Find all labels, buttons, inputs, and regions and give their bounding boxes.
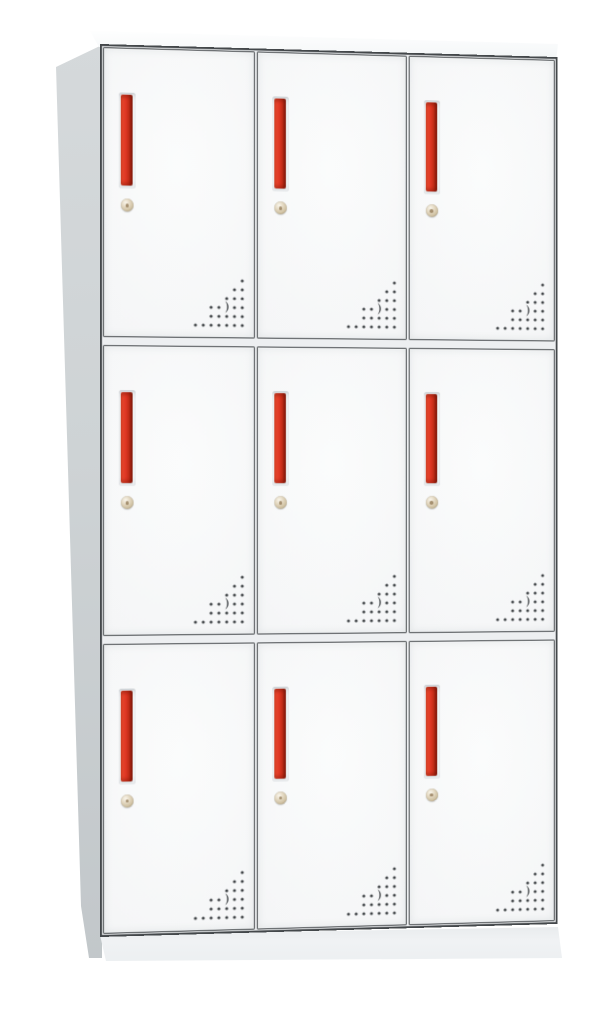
vent-dot <box>526 319 529 322</box>
vent-dot <box>210 611 213 614</box>
vent-dot <box>370 308 373 311</box>
vent-dot <box>210 907 213 910</box>
vent-crescent <box>377 889 380 901</box>
vent-dot <box>393 299 396 302</box>
vent-dot <box>393 326 396 329</box>
vent-dot <box>393 282 396 285</box>
vent-dot <box>347 913 350 916</box>
vent-dot <box>385 290 388 293</box>
vent-dot <box>377 885 380 888</box>
vent-dot <box>385 592 388 595</box>
vent-holes-icon <box>494 860 547 914</box>
vent-dot <box>541 327 544 330</box>
vent-dot <box>241 306 244 309</box>
vent-dot <box>504 618 507 621</box>
vent-dot <box>241 297 244 300</box>
vent-dot <box>218 620 221 623</box>
vent-dot <box>385 876 388 879</box>
vent-dot <box>225 297 228 300</box>
door-handle <box>425 394 436 483</box>
vent-dot <box>241 575 244 578</box>
vent-holes-icon <box>344 864 398 918</box>
vent-dot <box>534 600 537 603</box>
vent-dot <box>385 903 388 906</box>
vent-dot <box>541 292 544 295</box>
door-keyhole-lock <box>275 201 288 214</box>
vent-dot <box>534 617 537 620</box>
door-handle-recess <box>424 100 440 194</box>
locker-door <box>103 345 255 635</box>
vent-dot <box>541 890 544 893</box>
vent-dot <box>393 317 396 320</box>
vent-dot <box>233 916 236 919</box>
vent-dot <box>241 915 244 918</box>
locker-door <box>257 641 406 930</box>
vent-dot <box>225 889 228 892</box>
vent-dot <box>541 898 544 901</box>
door-handle <box>425 102 436 191</box>
vent-dot <box>241 898 244 901</box>
vent-dot <box>541 907 544 910</box>
door-handle-recess <box>273 686 289 781</box>
vent-holes-icon <box>192 572 247 626</box>
vent-dot <box>496 327 499 330</box>
vent-dot <box>496 618 499 621</box>
vent-dot <box>210 898 213 901</box>
vent-dot <box>210 315 213 318</box>
cabinet-side-panel <box>52 40 104 965</box>
vent-dot <box>202 917 205 920</box>
vent-crescent <box>377 596 380 608</box>
vent-dot <box>385 894 388 897</box>
vent-dot <box>541 872 544 875</box>
vent-dot <box>534 907 537 910</box>
vent-dot <box>541 864 544 867</box>
vent-dot <box>225 593 228 596</box>
locker-door <box>408 348 554 633</box>
vent-dot <box>233 297 236 300</box>
vent-dot <box>210 602 213 605</box>
vent-dot <box>210 916 213 919</box>
vent-dot <box>393 610 396 613</box>
vent-dot <box>233 602 236 605</box>
vent-crescent <box>226 597 229 609</box>
door-handle-recess <box>273 391 289 486</box>
vent-dot <box>377 610 380 613</box>
vent-dot <box>362 912 365 915</box>
vent-dot <box>511 908 514 911</box>
vent-dot <box>519 327 522 330</box>
vent-dot <box>519 899 522 902</box>
vent-dot <box>218 611 221 614</box>
vent-dot <box>354 912 357 915</box>
vent-dot <box>526 908 529 911</box>
vent-dot <box>233 584 236 587</box>
door-handle-recess <box>119 688 136 784</box>
cabinet-front <box>100 44 558 937</box>
vent-dot <box>393 911 396 914</box>
vent-dot <box>233 889 236 892</box>
vent-dot <box>241 880 244 883</box>
vent-dot <box>541 310 544 313</box>
vent-dot <box>534 327 537 330</box>
vent-dot <box>534 591 537 594</box>
vent-dot <box>534 301 537 304</box>
vent-dot <box>519 890 522 893</box>
vent-dot <box>393 291 396 294</box>
vent-dot <box>393 894 396 897</box>
vent-dot <box>194 324 197 327</box>
vent-dot <box>534 890 537 893</box>
vent-dot <box>362 326 365 329</box>
vent-dot <box>377 619 380 622</box>
vent-dot <box>393 574 396 577</box>
vent-dot <box>370 610 373 613</box>
vent-dot <box>233 611 236 614</box>
locker-door <box>408 56 554 342</box>
vent-dot <box>370 619 373 622</box>
vent-dot <box>393 592 396 595</box>
vent-holes-icon <box>344 278 398 332</box>
vent-dot <box>354 619 357 622</box>
vent-dot <box>377 903 380 906</box>
vent-dot <box>210 324 213 327</box>
door-keyhole-lock <box>121 794 134 807</box>
door-handle <box>275 98 287 188</box>
door-keyhole-lock <box>425 204 437 217</box>
locker-product-photo <box>0 0 605 1009</box>
vent-dot <box>534 319 537 322</box>
vent-dot <box>385 308 388 311</box>
vent-dot <box>385 912 388 915</box>
vent-dot <box>225 315 228 318</box>
vent-dot <box>541 881 544 884</box>
vent-dot <box>541 284 544 287</box>
vent-dot <box>241 907 244 910</box>
vent-dot <box>393 601 396 604</box>
door-handle <box>275 393 287 483</box>
vent-dot <box>541 609 544 612</box>
vent-dot <box>541 574 544 577</box>
vent-dot <box>218 907 221 910</box>
vent-dot <box>534 899 537 902</box>
vent-dot <box>519 908 522 911</box>
vent-dot <box>233 324 236 327</box>
vent-dot <box>233 593 236 596</box>
vent-dot <box>526 609 529 612</box>
vent-dot <box>241 871 244 874</box>
door-handle-recess <box>424 684 440 778</box>
vent-dot <box>504 908 507 911</box>
vent-dot <box>241 602 244 605</box>
vent-dot <box>362 894 365 897</box>
vent-dot <box>370 903 373 906</box>
vent-dot <box>385 299 388 302</box>
door-handle <box>275 688 287 778</box>
door-keyhole-lock <box>425 496 437 509</box>
vent-dot <box>385 317 388 320</box>
door-keyhole-lock <box>275 791 288 804</box>
vent-dot <box>393 885 396 888</box>
vent-dot <box>233 315 236 318</box>
door-handle-recess <box>119 390 136 486</box>
vent-dot <box>534 310 537 313</box>
vent-dot <box>519 600 522 603</box>
vent-dot <box>385 610 388 613</box>
door-handle <box>121 95 133 186</box>
door-handle <box>121 392 133 483</box>
vent-dot <box>377 912 380 915</box>
door-handle-recess <box>119 92 136 188</box>
vent-dot <box>526 327 529 330</box>
vent-dot <box>534 609 537 612</box>
vent-dot <box>541 600 544 603</box>
door-handle-recess <box>424 392 440 486</box>
vent-dot <box>393 876 396 879</box>
vent-dot <box>233 306 236 309</box>
vent-dot <box>534 881 537 884</box>
vent-dot <box>519 318 522 321</box>
locker-door <box>103 642 255 934</box>
vent-crescent <box>377 303 380 315</box>
vent-dot <box>241 584 244 587</box>
vent-crescent <box>226 301 229 313</box>
vent-dot <box>541 319 544 322</box>
locker-door <box>103 47 255 339</box>
vent-dot <box>511 327 514 330</box>
vent-dot <box>233 288 236 291</box>
vent-holes-icon <box>494 280 547 333</box>
vent-dot <box>241 620 244 623</box>
vent-dot <box>511 600 514 603</box>
vent-dot <box>225 620 228 623</box>
vent-dot <box>218 315 221 318</box>
vent-dot <box>362 601 365 604</box>
vent-dot <box>541 617 544 620</box>
vent-crescent <box>526 885 529 897</box>
door-handle <box>425 686 436 775</box>
door-keyhole-lock <box>425 788 437 801</box>
vent-dot <box>225 324 228 327</box>
door-keyhole-lock <box>121 496 134 509</box>
vent-dot <box>218 602 221 605</box>
door-keyhole-lock <box>275 496 288 509</box>
vent-dot <box>385 583 388 586</box>
vent-dot <box>202 324 205 327</box>
vent-dot <box>511 891 514 894</box>
vent-dot <box>541 582 544 585</box>
vent-dot <box>526 301 529 304</box>
vent-dot <box>393 902 396 905</box>
vent-dot <box>526 617 529 620</box>
vent-dot <box>393 308 396 311</box>
vent-dot <box>519 609 522 612</box>
vent-dot <box>511 899 514 902</box>
vent-dot <box>541 591 544 594</box>
vent-dot <box>218 324 221 327</box>
vent-dot <box>241 289 244 292</box>
vent-dot <box>362 610 365 613</box>
vent-dot <box>496 908 499 911</box>
vent-dot <box>526 899 529 902</box>
vent-dot <box>241 315 244 318</box>
door-handle-recess <box>273 96 289 191</box>
vent-dot <box>519 310 522 313</box>
vent-dot <box>511 310 514 313</box>
vent-dot <box>534 582 537 585</box>
vent-dot <box>511 318 514 321</box>
vent-dot <box>385 326 388 329</box>
vent-holes-icon <box>192 867 247 922</box>
vent-dot <box>210 306 213 309</box>
vent-dot <box>393 619 396 622</box>
vent-dot <box>233 907 236 910</box>
vent-dot <box>225 611 228 614</box>
vent-dot <box>241 280 244 283</box>
vent-dot <box>354 325 357 328</box>
vent-crescent <box>226 893 229 905</box>
vent-dot <box>218 306 221 309</box>
door-keyhole-lock <box>121 198 134 211</box>
vent-dot <box>526 591 529 594</box>
vent-dot <box>377 317 380 320</box>
vent-dot <box>534 872 537 875</box>
vent-dot <box>241 889 244 892</box>
vent-dot <box>370 326 373 329</box>
vent-dot <box>210 620 213 623</box>
vent-dot <box>241 611 244 614</box>
vent-dot <box>511 609 514 612</box>
vent-dot <box>385 885 388 888</box>
vent-dot <box>202 620 205 623</box>
vent-dot <box>370 912 373 915</box>
locker-door <box>408 639 554 925</box>
vent-dot <box>347 325 350 328</box>
vent-dot <box>526 881 529 884</box>
locker-door <box>257 347 406 634</box>
vent-dot <box>534 292 537 295</box>
vent-dot <box>362 317 365 320</box>
vent-dot <box>194 917 197 920</box>
vent-dot <box>233 620 236 623</box>
vent-dot <box>194 620 197 623</box>
vent-dot <box>241 324 244 327</box>
vent-dot <box>233 898 236 901</box>
vent-dot <box>218 898 221 901</box>
locker-door <box>257 51 406 340</box>
vent-dot <box>362 903 365 906</box>
vent-dot <box>225 916 228 919</box>
door-grid <box>103 47 555 934</box>
vent-dot <box>347 619 350 622</box>
vent-crescent <box>526 595 529 607</box>
vent-crescent <box>526 305 529 317</box>
vent-dot <box>377 299 380 302</box>
vent-dot <box>393 583 396 586</box>
vent-dot <box>362 619 365 622</box>
vent-dot <box>241 593 244 596</box>
vent-dot <box>385 601 388 604</box>
vent-dot <box>393 867 396 870</box>
vent-dot <box>377 326 380 329</box>
vent-dot <box>385 619 388 622</box>
vent-dot <box>504 327 507 330</box>
vent-dot <box>225 907 228 910</box>
vent-dot <box>377 592 380 595</box>
vent-dot <box>370 894 373 897</box>
vent-dot <box>370 317 373 320</box>
vent-dot <box>541 301 544 304</box>
door-handle <box>121 690 133 781</box>
vent-dot <box>218 916 221 919</box>
vent-holes-icon <box>344 571 398 624</box>
vent-dot <box>519 618 522 621</box>
vent-dot <box>370 601 373 604</box>
vent-dot <box>233 880 236 883</box>
vent-dot <box>362 308 365 311</box>
vent-holes-icon <box>192 276 247 330</box>
vent-holes-icon <box>494 570 547 623</box>
vent-dot <box>511 618 514 621</box>
